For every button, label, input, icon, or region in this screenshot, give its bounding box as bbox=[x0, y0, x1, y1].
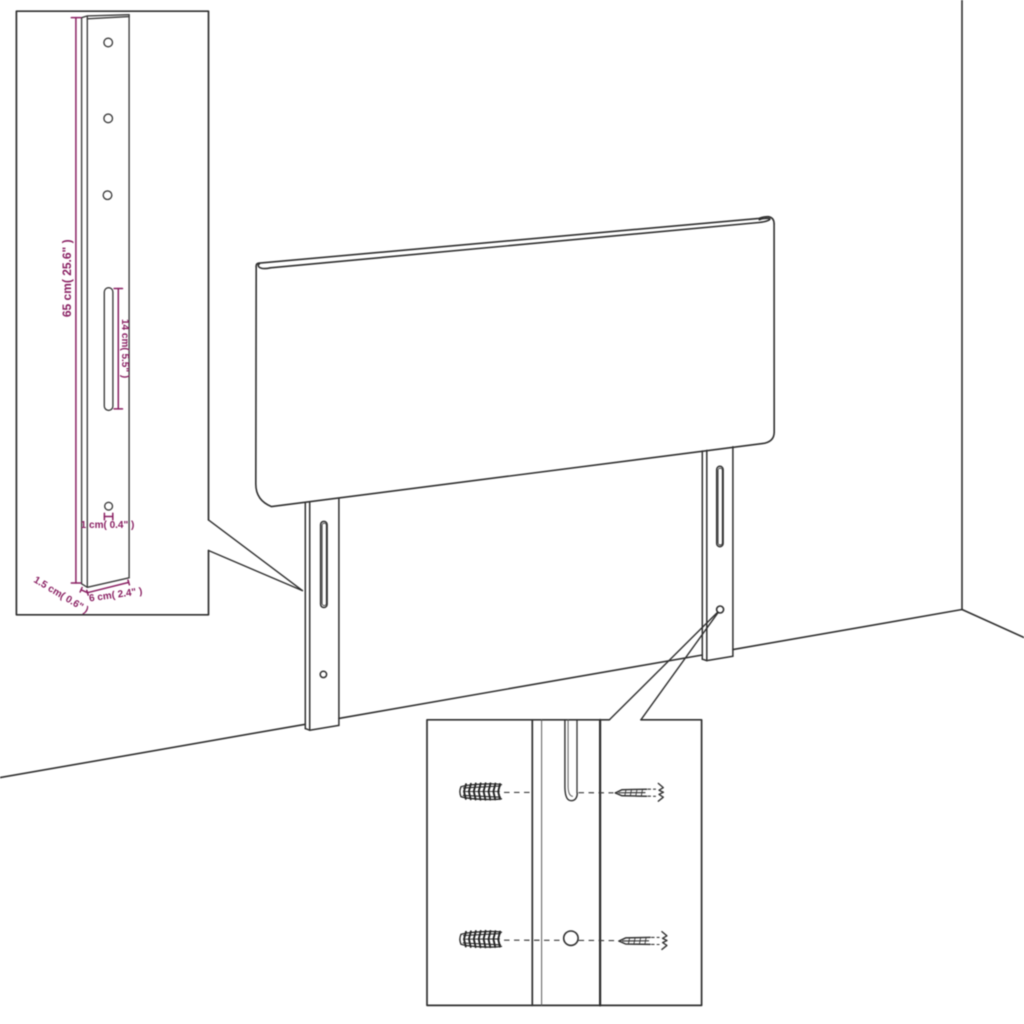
svg-text:1 cm( 0.4" ): 1 cm( 0.4" ) bbox=[81, 520, 135, 531]
svg-text:65 cm( 25.6" ): 65 cm( 25.6" ) bbox=[60, 239, 74, 317]
svg-text:14 cm( 5.5" ): 14 cm( 5.5" ) bbox=[119, 319, 130, 378]
